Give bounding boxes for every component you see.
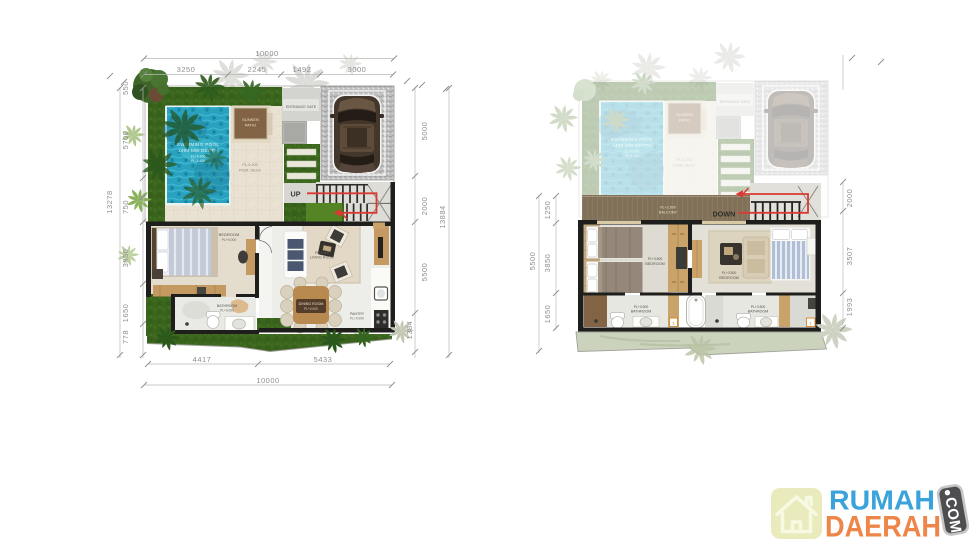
svg-text:LIVING ROOM: LIVING ROOM: [310, 256, 334, 260]
svg-text:BATHROOM: BATHROOM: [631, 310, 652, 314]
svg-text:5500: 5500: [420, 263, 429, 282]
svg-text:BEDROOM: BEDROOM: [719, 276, 739, 280]
svg-text:BATHROOM: BATHROOM: [217, 304, 238, 308]
svg-text:PANTRY: PANTRY: [350, 312, 365, 316]
svg-text:550: 550: [121, 81, 130, 95]
svg-text:PL+0.000: PL+0.000: [315, 251, 330, 255]
svg-text:PL+3.500: PL+3.500: [751, 305, 766, 309]
svg-text:1384: 1384: [405, 321, 414, 340]
svg-text:10000: 10000: [256, 376, 279, 385]
svg-text:PL-0.100: PL-0.100: [242, 163, 257, 167]
svg-text:PL+3.500: PL+3.500: [648, 257, 663, 261]
svg-text:PL+0.000: PL+0.000: [220, 309, 234, 313]
svg-text:3250: 3250: [177, 65, 196, 74]
svg-text:PATIO: PATIO: [245, 123, 256, 128]
svg-text:DAERAH: DAERAH: [825, 511, 941, 544]
svg-text:EL+0.100: EL+0.100: [191, 155, 206, 159]
svg-text:BEDROOM: BEDROOM: [219, 232, 240, 237]
svg-text:PL+0.000: PL+0.000: [350, 317, 364, 321]
svg-text:13884: 13884: [438, 205, 447, 228]
svg-text:1993: 1993: [845, 298, 854, 317]
svg-text:3850: 3850: [121, 249, 130, 268]
svg-text:1650: 1650: [121, 304, 130, 323]
svg-text:UP: UP: [291, 190, 301, 199]
svg-text:PL+0.000: PL+0.000: [222, 238, 237, 242]
svg-text:SWIMMING POOL: SWIMMING POOL: [177, 142, 220, 147]
svg-text:ENTRANCE GATE: ENTRANCE GATE: [286, 105, 317, 109]
svg-text:BALCONY: BALCONY: [659, 211, 678, 215]
svg-text:3850: 3850: [543, 254, 552, 273]
svg-text:750: 750: [121, 200, 130, 214]
svg-text:BATHROOM: BATHROOM: [748, 310, 769, 314]
svg-text:4417: 4417: [193, 355, 212, 364]
svg-text:DINING ROOM: DINING ROOM: [299, 302, 324, 306]
svg-text:10000: 10000: [255, 49, 278, 58]
svg-text:PL+0.000: PL+0.000: [304, 307, 318, 311]
svg-text:1250: 1250: [543, 201, 552, 220]
svg-text:5700: 5700: [121, 131, 130, 150]
svg-text:13278: 13278: [105, 190, 114, 213]
svg-text:SUNKEN: SUNKEN: [242, 117, 259, 122]
svg-text:1492: 1492: [293, 65, 312, 74]
svg-text:5500: 5500: [528, 252, 537, 271]
svg-text:3507: 3507: [845, 247, 854, 266]
svg-text:1650: 1650: [543, 305, 552, 324]
svg-text:PL+3.500: PL+3.500: [660, 206, 676, 210]
svg-text:5433: 5433: [314, 355, 333, 364]
svg-text:BEDROOM: BEDROOM: [645, 262, 665, 266]
svg-text:778: 778: [121, 330, 130, 344]
svg-text:2000: 2000: [420, 197, 429, 216]
svg-text:2000: 2000: [845, 189, 854, 208]
svg-text:PL+3.500: PL+3.500: [634, 305, 649, 309]
svg-text:3000: 3000: [348, 65, 367, 74]
svg-text:DOWN: DOWN: [713, 210, 736, 219]
svg-text:PL-1.400: PL-1.400: [191, 159, 205, 163]
svg-text:PL+3.500: PL+3.500: [722, 271, 737, 275]
svg-text:5000: 5000: [420, 122, 429, 141]
svg-text:2245: 2245: [248, 65, 267, 74]
svg-text:POOL DECK: POOL DECK: [239, 169, 261, 173]
